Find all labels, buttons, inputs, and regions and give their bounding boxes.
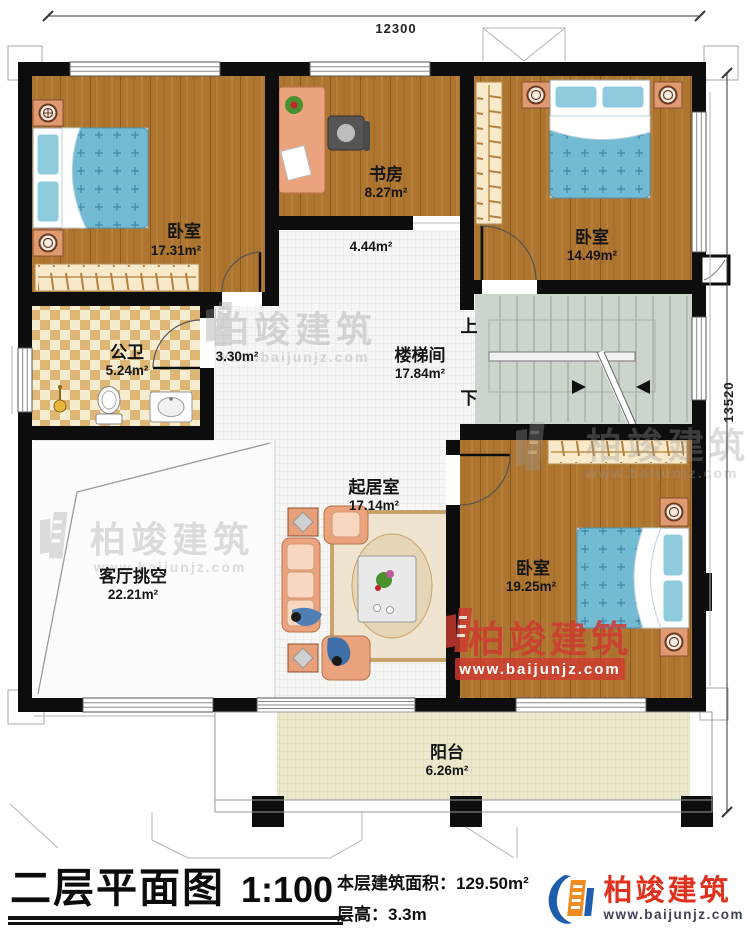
pillow	[37, 181, 59, 222]
dimension-top: 12300	[375, 21, 416, 36]
floor-plan-page: 柏竣建筑 www.baijunjz.com 柏竣建筑 www.baijunjz.…	[0, 0, 750, 939]
toilet-tank	[96, 414, 122, 424]
window	[18, 348, 32, 412]
watermark-name: 柏竣建筑	[90, 519, 254, 560]
drawing-title-group: 二层平面图 1:100	[8, 868, 343, 920]
wardrobe-hangers	[38, 265, 196, 290]
room-area-balcony: 6.26m²	[426, 763, 469, 778]
drawing-title: 二层平面图	[10, 868, 225, 909]
logo-icon	[539, 870, 595, 928]
flue-box	[701, 256, 729, 284]
logo-url: www.baijunjz.com	[603, 907, 744, 922]
room-name-bathroom: 公卫	[110, 343, 144, 362]
room-area-study: 8.27m²	[365, 185, 408, 200]
drawing-scale: 1:100	[241, 871, 333, 909]
title-block: 二层平面图 1:100 本层建筑面积：129.50m² 层高：3.3m 柏竣建筑…	[0, 862, 750, 939]
watermark-url: www.baijunjz.com	[458, 661, 620, 678]
company-logo: 柏竣建筑 www.baijunjz.com	[539, 870, 744, 928]
room-name-bedroom-top-right: 卧室	[575, 227, 609, 247]
pillow	[663, 580, 683, 622]
window	[516, 698, 646, 712]
pillow	[37, 134, 59, 175]
balcony-floor	[277, 712, 690, 800]
window	[692, 112, 706, 252]
watermark-name: 柏竣建筑	[213, 309, 377, 350]
stairs-down-label: 下	[461, 389, 478, 408]
desk-chair	[363, 121, 370, 151]
floor-area-line: 本层建筑面积：129.50m²	[337, 868, 529, 899]
window	[310, 62, 430, 76]
stairs-up-label: 上	[461, 317, 478, 336]
window	[70, 62, 220, 76]
floor-plan-drawing: 柏竣建筑 www.baijunjz.com 柏竣建筑 www.baijunjz.…	[0, 0, 750, 862]
family-room-furniture	[282, 506, 458, 680]
floor-height-line: 层高：3.3m	[337, 899, 529, 930]
floor-drain	[54, 400, 66, 412]
dimension-right: 13520	[721, 381, 736, 422]
room-area-stairwell: 17.84m²	[395, 366, 446, 381]
building-info: 本层建筑面积：129.50m² 层高：3.3m	[337, 868, 529, 931]
room-area-corridor: 3.30m²	[216, 349, 259, 364]
roof-gable	[483, 28, 565, 61]
window	[83, 698, 213, 712]
room-area-family-room: 17.14m²	[349, 498, 400, 513]
pillow	[555, 86, 597, 108]
room-area-bedroom-top-right: 14.49m²	[567, 248, 618, 263]
logo-name: 柏竣建筑	[603, 876, 731, 908]
pillow	[602, 86, 644, 108]
wardrobe-hangers	[477, 85, 501, 221]
room-area-bedroom-top-left: 17.31m²	[151, 243, 202, 258]
watermark-name: 柏竣建筑	[468, 618, 632, 660]
watermark-red: 柏竣建筑 www.baijunjz.com	[446, 608, 632, 680]
room-name-stairwell: 楼梯间	[395, 345, 446, 365]
watermark-name: 柏竣建筑	[586, 425, 750, 466]
window	[692, 317, 706, 400]
stair-handrail	[489, 352, 635, 361]
room-area-hallway: 4.44m²	[350, 239, 393, 254]
room-name-living-void: 客厅挑空	[98, 566, 167, 586]
room-name-balcony: 阳台	[430, 742, 464, 762]
pillow	[663, 534, 683, 576]
room-area-bedroom-bottom-right: 19.25m²	[506, 579, 557, 594]
room-name-study: 书房	[369, 164, 403, 184]
room-area-bathroom: 5.24m²	[106, 363, 149, 378]
room-name-bedroom-bottom-right: 卧室	[516, 558, 550, 578]
sliding-door	[257, 698, 415, 712]
room-name-bedroom-top-left: 卧室	[167, 221, 201, 241]
watermark-url: www.baijunjz.com	[585, 465, 739, 481]
room-name-family-room: 起居室	[348, 477, 400, 497]
room-area-living-void: 22.21m²	[108, 587, 159, 602]
bed-quilt	[577, 528, 643, 628]
